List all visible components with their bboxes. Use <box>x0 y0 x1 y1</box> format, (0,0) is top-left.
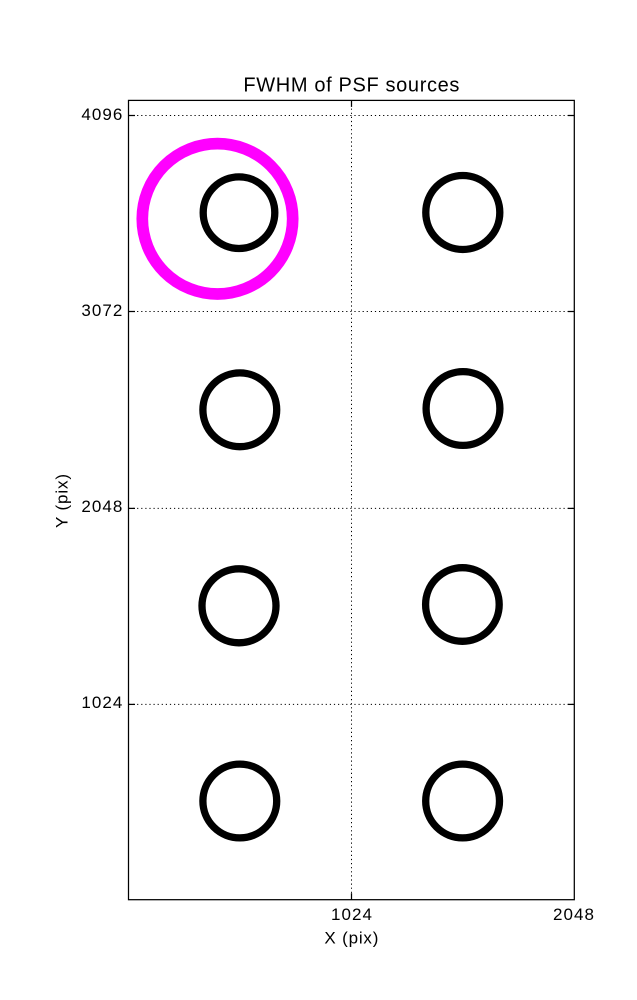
svg-text:1024: 1024 <box>81 693 122 712</box>
svg-text:3072: 3072 <box>81 301 122 320</box>
svg-text:X (pix): X (pix) <box>324 929 378 948</box>
svg-text:2048: 2048 <box>81 497 122 516</box>
svg-text:4096: 4096 <box>81 105 122 124</box>
svg-text:Y (pix): Y (pix) <box>53 474 72 528</box>
svg-text:1024: 1024 <box>331 905 372 924</box>
svg-text:FWHM of PSF sources: FWHM of PSF sources <box>243 74 459 96</box>
svg-text:2048: 2048 <box>553 905 594 924</box>
